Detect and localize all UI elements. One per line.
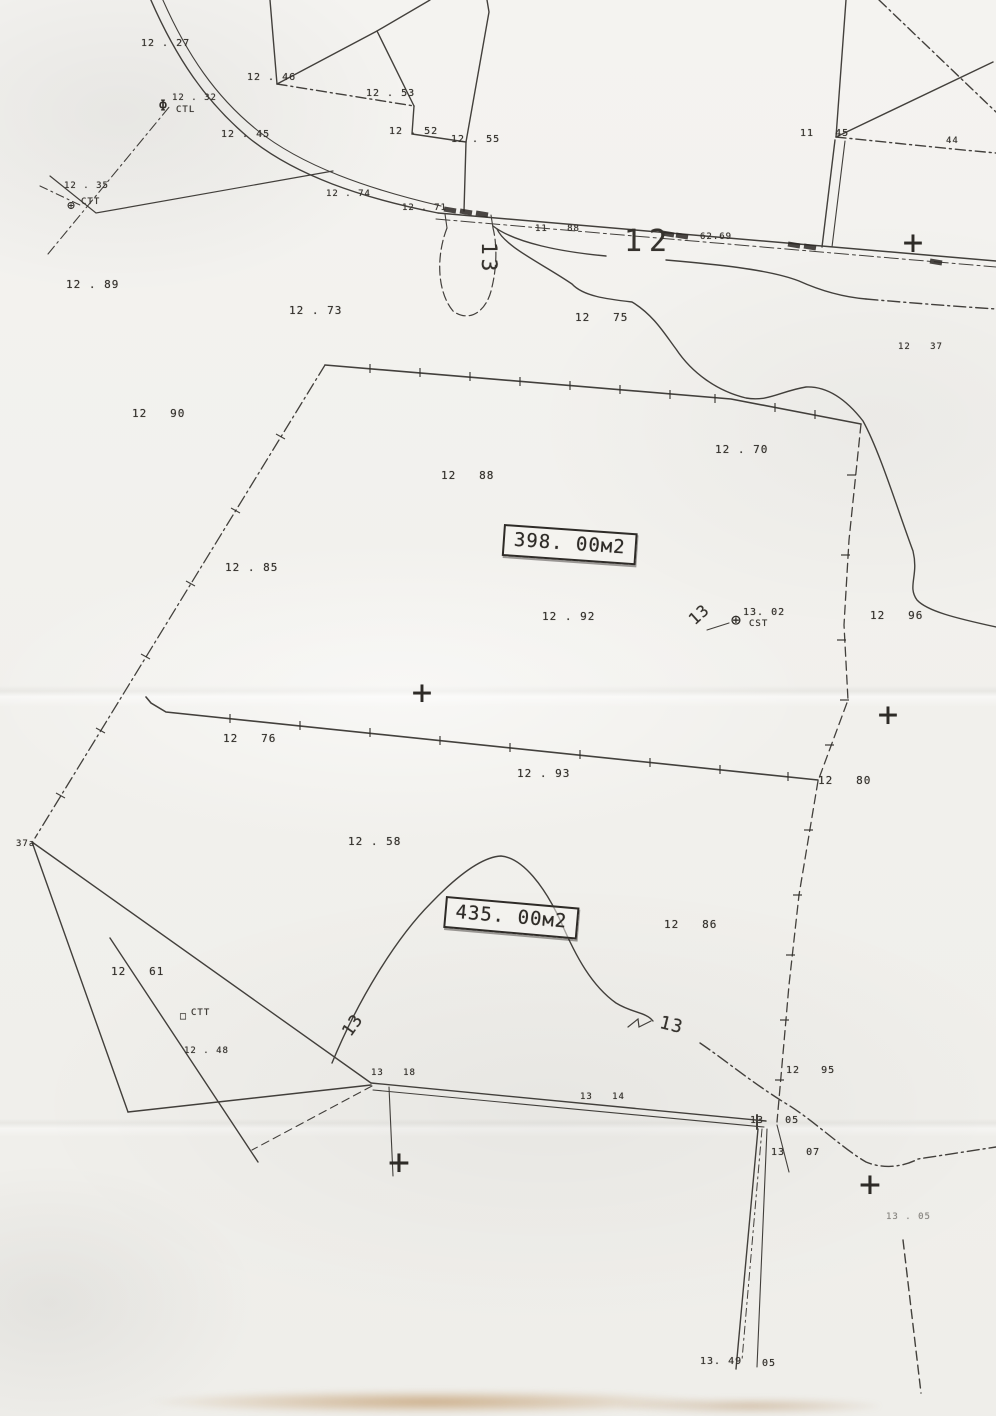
contour-label-13: 13: [478, 242, 500, 275]
spot-elevation: 12 88: [441, 470, 494, 482]
parcel-number: 37a: [16, 840, 35, 849]
contour-label-13: 13: [340, 1012, 368, 1041]
scan-stain: [620, 1398, 880, 1414]
spot-elevation: 12 76: [223, 733, 276, 745]
spot-elevation: 13 07: [771, 1148, 820, 1159]
spot-elevation: 12 86: [664, 919, 717, 931]
spot-elevation: 12 . 52: [389, 127, 438, 138]
spot-elevation: 13 18: [371, 1069, 416, 1078]
spot-elevation: 11 45: [800, 129, 849, 140]
label-layer: 12 . 2712 . 4612 . 5312 . 5212 . 5512 . …: [0, 0, 996, 1416]
spot-elevation: 12 80: [818, 775, 871, 787]
spot-elevation: 12 . 74: [326, 190, 371, 199]
survey-point-icon: Φ: [158, 99, 167, 114]
spot-elevation: 12 . 85: [225, 562, 278, 574]
contour-label-13: 13: [686, 602, 713, 629]
station-label: CTT: [191, 1009, 210, 1018]
spot-elevation: 13 05: [750, 1116, 799, 1127]
spot-elevation: 12 . 58: [348, 836, 401, 848]
grid-cross: +: [878, 698, 898, 732]
grid-cross: +: [859, 1167, 881, 1203]
spot-elevation: 13. 49: [700, 1357, 742, 1368]
spot-elevation: 12 . 55: [451, 135, 500, 146]
scanned-survey-map: 12 . 2712 . 4612 . 5312 . 5212 . 5512 . …: [0, 0, 996, 1416]
spot-elevation: 12 . 46: [247, 73, 296, 84]
spot-elevation: 12 . 89: [66, 279, 119, 291]
spot-elevation: 05: [762, 1359, 776, 1370]
spot-elevation: 12 . 45: [221, 130, 270, 141]
spot-elevation: 12 . 35: [64, 182, 109, 191]
parcel-area-398: 398. 00м2: [502, 524, 638, 565]
spot-elevation: 11 88: [535, 225, 580, 234]
spot-elevation: 13 14: [580, 1093, 625, 1102]
contour-label-12: 12: [624, 226, 674, 258]
spot-elevation: 12 . 32: [172, 94, 217, 103]
spot-elevation: 12 . 92: [542, 611, 595, 623]
spot-elevation: 12 . 48: [184, 1047, 229, 1056]
spot-elevation: 12 95: [786, 1066, 835, 1077]
spot-elevation: 44: [946, 137, 959, 146]
spot-elevation: 12 . 53: [366, 89, 415, 100]
spot-elevation: 12 75: [575, 312, 628, 324]
spot-elevation: 12 90: [132, 408, 185, 420]
spot-elevation: 13. 02: [743, 608, 785, 619]
survey-marker-icon: □: [180, 1012, 186, 1022]
contour-label-13: 13: [657, 1014, 685, 1038]
station-label: CST: [749, 620, 768, 629]
spot-elevation: 12 . 71: [402, 204, 447, 213]
grid-cross: +: [388, 1145, 410, 1181]
spot-elevation: 12 . 73: [289, 305, 342, 317]
spot-elevation: 12 . 70: [715, 444, 768, 456]
grid-cross: +: [412, 676, 432, 710]
survey-point-icon: ⊕: [67, 200, 75, 213]
road-annotation: 62.69: [700, 233, 732, 242]
parcel-area-435: 435. 00м2: [443, 896, 579, 939]
spot-elevation: 12 96: [870, 610, 923, 622]
grid-cross: +: [903, 226, 923, 260]
station-label: CTT: [81, 198, 100, 207]
spot-elevation: 12 . 27: [141, 39, 190, 50]
spot-elevation: 12 . 93: [517, 768, 570, 780]
station-label: CTL: [176, 106, 195, 115]
spot-elevation: 13 . 05: [886, 1213, 931, 1222]
spot-elevation: 12 37: [898, 343, 943, 352]
spot-elevation: 12 61: [111, 966, 164, 978]
survey-point-icon: ⊕: [731, 613, 741, 630]
